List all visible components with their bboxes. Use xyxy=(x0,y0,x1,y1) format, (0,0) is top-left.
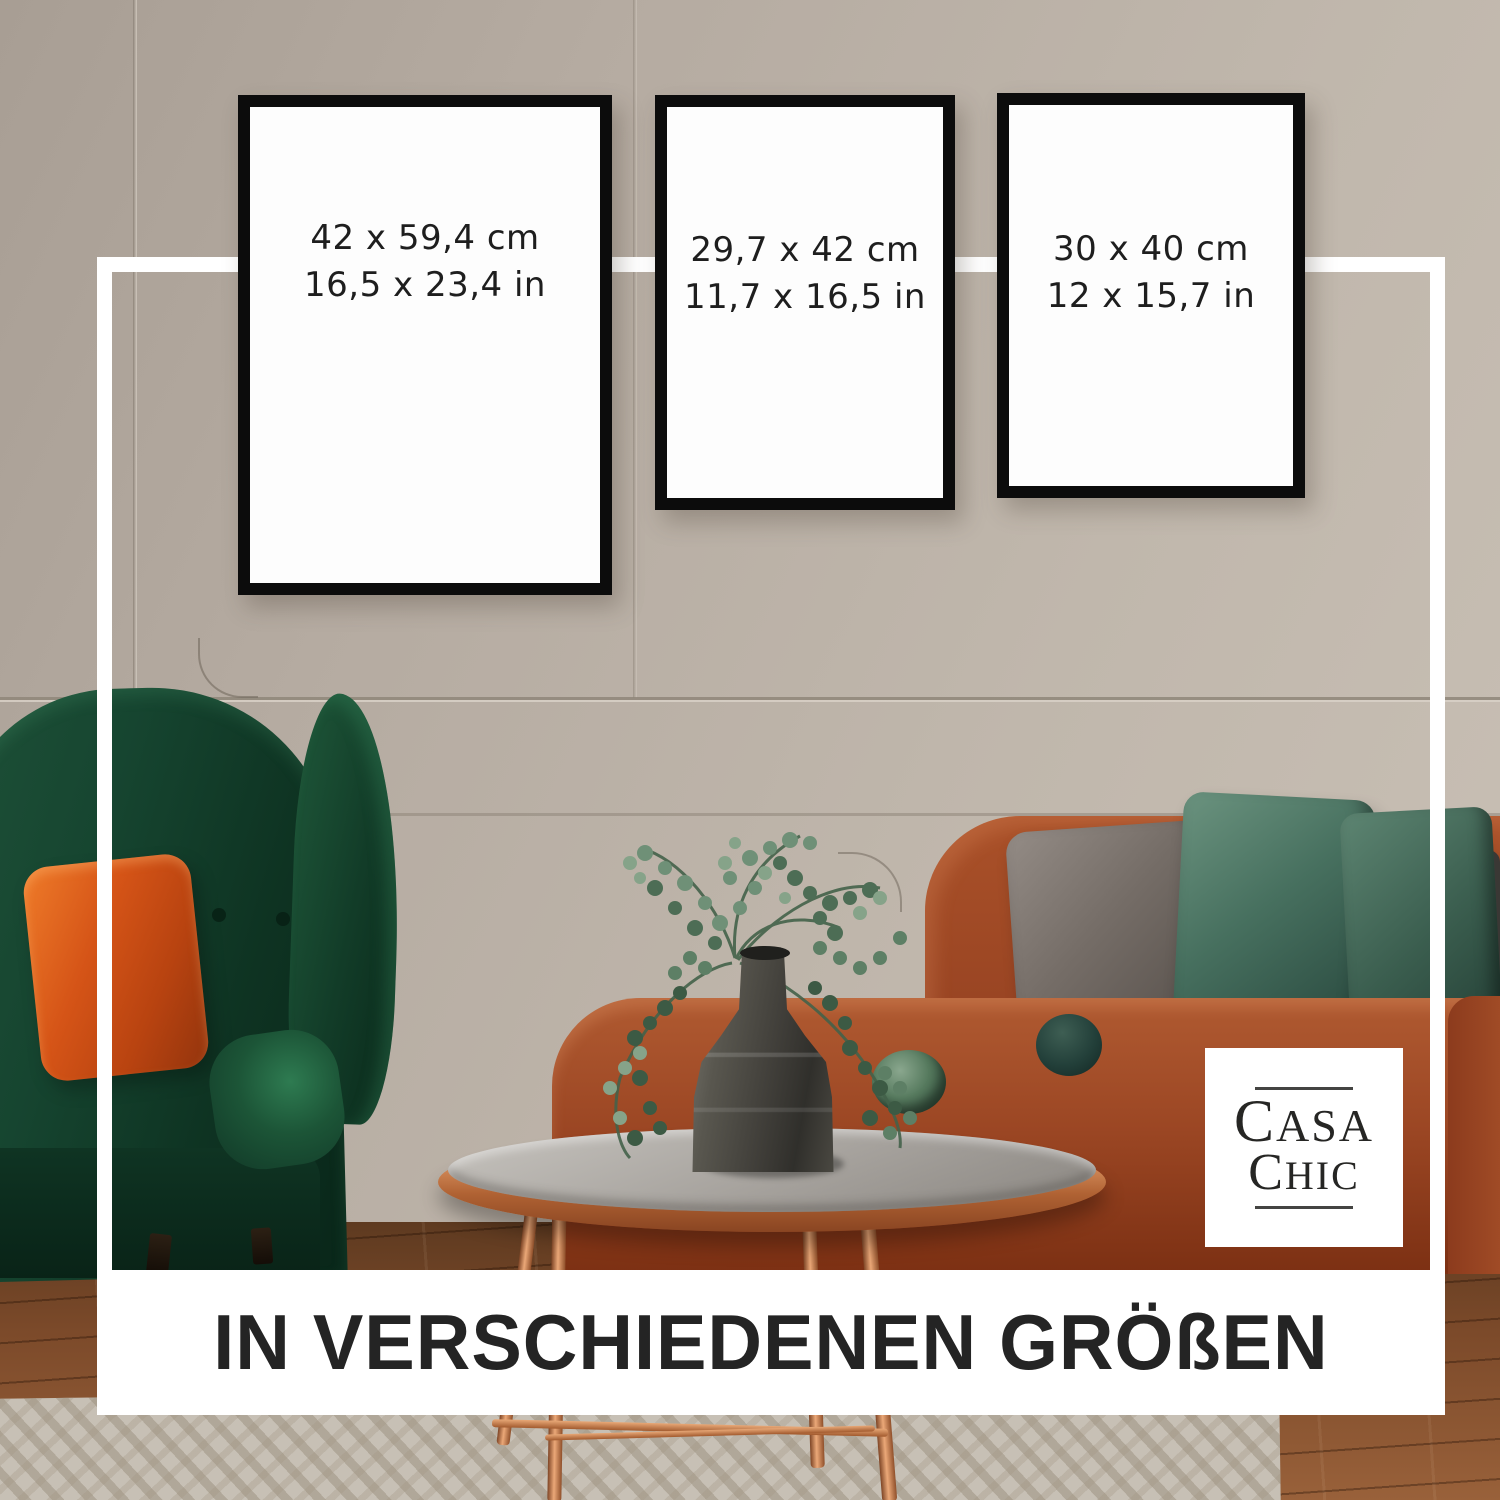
dado-rail-molding xyxy=(0,697,1500,702)
frame-size-label: 29,7 x 42 cm 11,7 x 16,5 in xyxy=(667,227,943,321)
size-inch: 12 x 15,7 in xyxy=(1009,273,1293,320)
armchair-leg xyxy=(146,1233,172,1275)
size-cm: 30 x 40 cm xyxy=(1009,226,1293,273)
armchair-leg xyxy=(251,1227,273,1264)
logo-word-casa: CASA xyxy=(1234,1096,1374,1151)
decor-sphere-dark xyxy=(1036,1014,1102,1076)
headline: IN VERSCHIEDENEN GRÖßEN xyxy=(213,1297,1328,1388)
vase-opening xyxy=(740,946,790,960)
orange-cushion xyxy=(21,852,211,1083)
tuft-button xyxy=(276,912,290,926)
logo-word-chic: CHIC xyxy=(1248,1151,1360,1198)
brand-logo: CASA CHIC xyxy=(1205,1048,1403,1247)
wall-groove xyxy=(633,0,637,698)
size-inch: 16,5 x 23,4 in xyxy=(250,262,600,309)
frame-size-label: 42 x 59,4 cm 16,5 x 23,4 in xyxy=(250,215,600,309)
product-image: 42 x 59,4 cm 16,5 x 23,4 in 29,7 x 42 cm… xyxy=(0,0,1500,1500)
overlay-bottom-band: IN VERSCHIEDENEN GRÖßEN xyxy=(97,1270,1445,1415)
overlay-border-left xyxy=(97,257,112,1272)
logo-rule xyxy=(1255,1206,1353,1209)
poster-frame-30x40: 30 x 40 cm 12 x 15,7 in xyxy=(997,93,1305,498)
poster-frame-29x42: 29,7 x 42 cm 11,7 x 16,5 in xyxy=(655,95,955,510)
wall-panel-ornament xyxy=(198,638,258,698)
sofa-armrest xyxy=(1448,996,1500,1274)
size-cm: 29,7 x 42 cm xyxy=(667,227,943,274)
wall-groove xyxy=(133,0,137,698)
size-inch: 11,7 x 16,5 in xyxy=(667,274,943,321)
size-cm: 42 x 59,4 cm xyxy=(250,215,600,262)
overlay-border-right xyxy=(1430,257,1445,1272)
tuft-button xyxy=(212,908,226,922)
frame-size-label: 30 x 40 cm 12 x 15,7 in xyxy=(1009,226,1293,320)
poster-frame-42x59: 42 x 59,4 cm 16,5 x 23,4 in xyxy=(238,95,612,595)
